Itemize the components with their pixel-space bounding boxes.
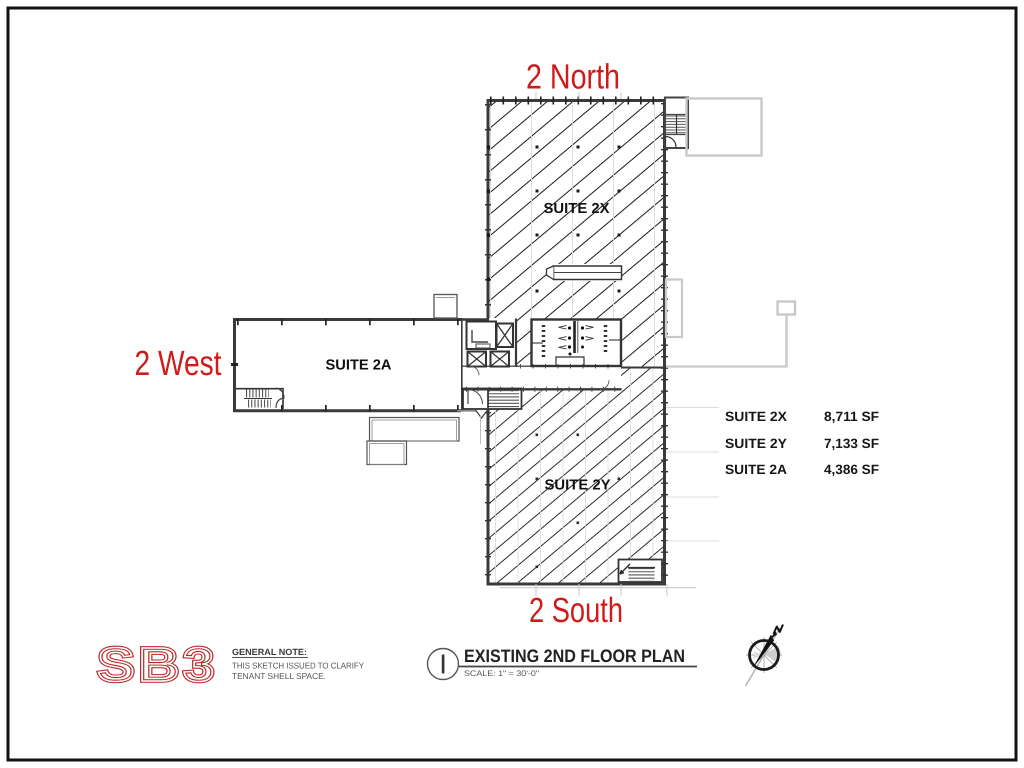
svg-text:EXISTING 2ND FLOOR PLAN: EXISTING 2ND FLOOR PLAN <box>464 646 685 666</box>
svg-text:SUITE 2A: SUITE 2A <box>326 358 393 374</box>
svg-text:SB3: SB3 <box>97 639 218 692</box>
svg-text:SCALE: 1" = 30'-0": SCALE: 1" = 30'-0" <box>464 669 539 678</box>
svg-text:SUITE 2Y: SUITE 2Y <box>545 478 611 494</box>
svg-text:4,386 SF: 4,386 SF <box>824 462 879 477</box>
svg-text:7,133 SF: 7,133 SF <box>824 436 879 451</box>
svg-text:SUITE 2A: SUITE 2A <box>725 462 787 477</box>
svg-text:2 North: 2 North <box>526 58 620 97</box>
svg-text:8,711 SF: 8,711 SF <box>824 409 879 424</box>
svg-text:SUITE 2Y: SUITE 2Y <box>725 436 787 451</box>
svg-text:2 West: 2 West <box>135 344 222 383</box>
svg-text:2 South: 2 South <box>529 591 623 630</box>
svg-text:SUITE 2X: SUITE 2X <box>725 409 787 424</box>
svg-text:THIS SKETCH ISSUED TO CLARIFY: THIS SKETCH ISSUED TO CLARIFY <box>232 661 364 671</box>
svg-text:TENANT SHELL SPACE.: TENANT SHELL SPACE. <box>232 671 326 681</box>
svg-text:SUITE 2X: SUITE 2X <box>544 201 610 217</box>
svg-text:GENERAL NOTE:: GENERAL NOTE: <box>232 647 307 657</box>
